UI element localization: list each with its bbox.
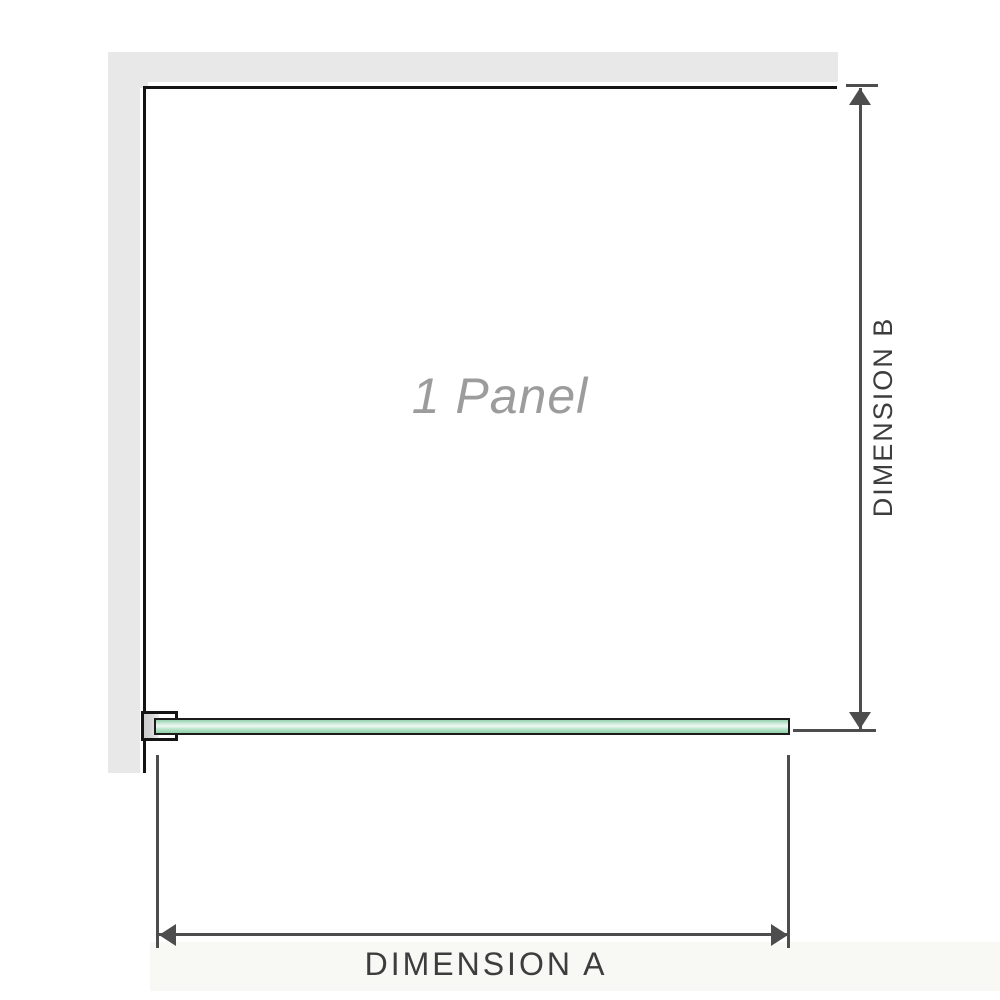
dimension-b-label: DIMENSION B [868,277,898,557]
arrow-left-icon [159,924,176,946]
dimension-a-extension-left [156,755,159,948]
panel-count-label: 1 Panel [350,366,650,426]
glass-panel-bar [154,718,790,735]
dimension-a-line [159,933,788,936]
wall-top [108,52,838,82]
panel-dimension-diagram: 1 Panel DIMENSION B DIMENSION A [0,0,1000,1000]
dimension-b-tick-top [846,84,878,87]
arrow-right-icon [771,924,788,946]
dimension-a-label: DIMENSION A [316,944,656,984]
arrow-down-icon [849,712,871,729]
dimension-b-tick-bottom [793,729,876,732]
dimension-a-extension-right [787,755,790,948]
wall-left [108,52,140,773]
panel-outline-top [143,86,837,89]
dimension-b-line [859,88,862,732]
panel-outline-left [143,86,146,773]
arrow-up-icon [849,88,871,105]
